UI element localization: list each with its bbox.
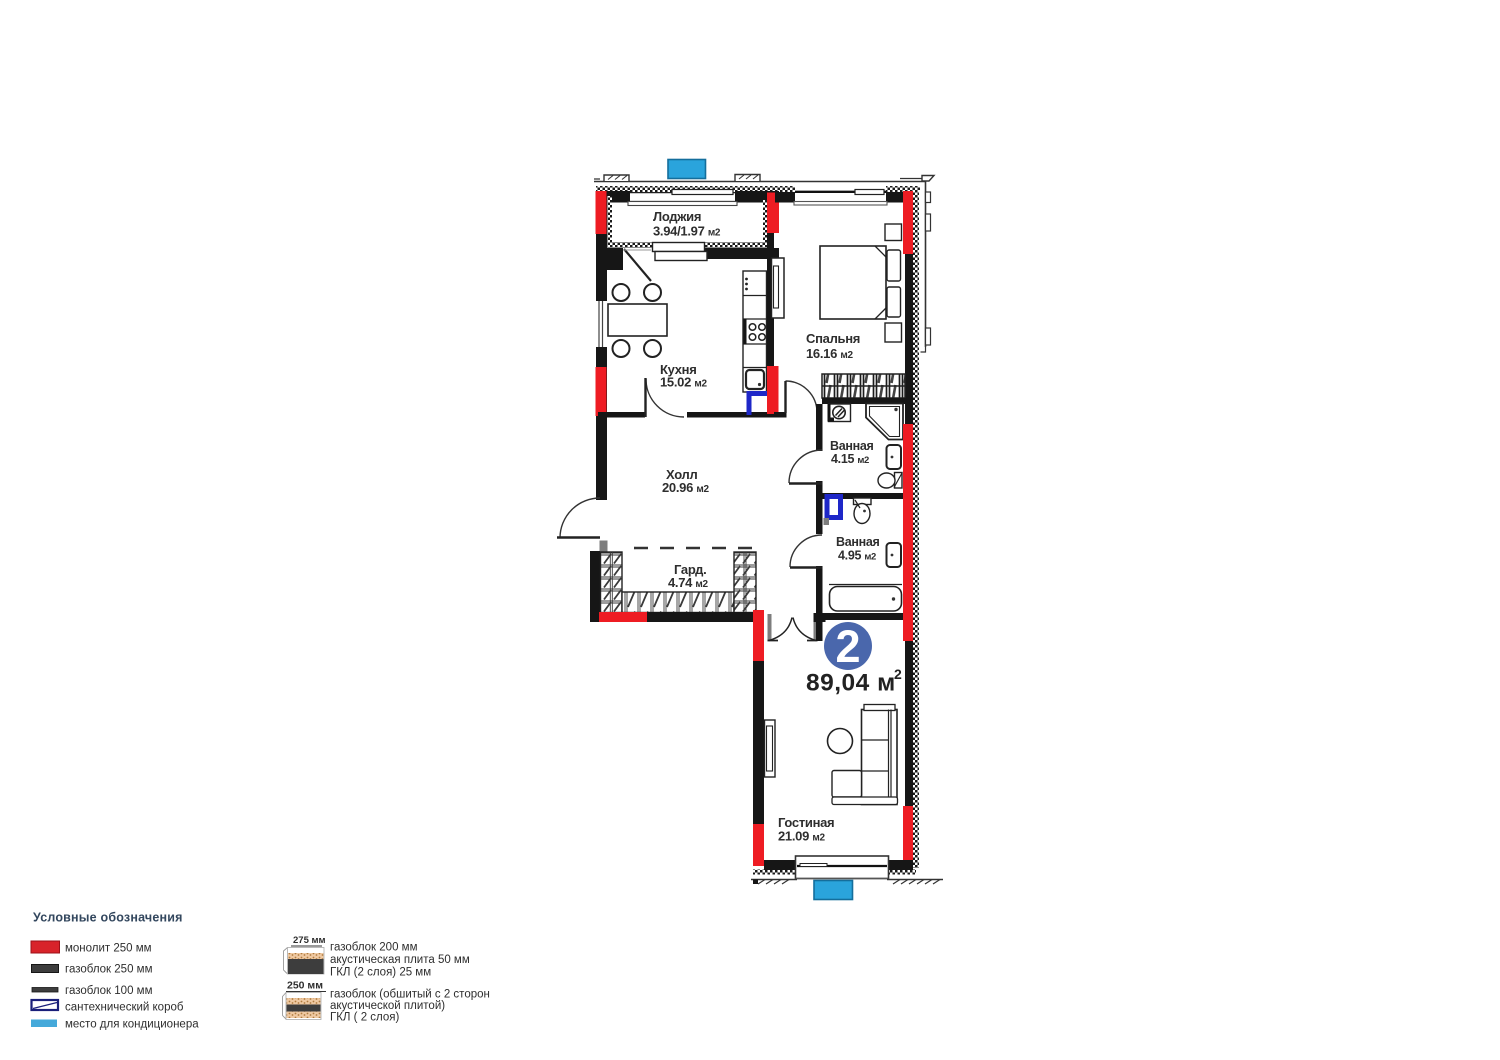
svg-text:газоблок 100 мм: газоблок 100 мм <box>65 985 153 997</box>
svg-text:Спальня: Спальня <box>806 331 860 346</box>
svg-text:акустической плитой): акустической плитой) <box>330 1000 445 1012</box>
svg-text:Условные обозначения: Условные обозначения <box>33 911 183 925</box>
svg-text:Ванная: Ванная <box>830 439 874 453</box>
svg-text:газоблок 200 мм: газоблок 200 мм <box>330 942 418 954</box>
svg-text:сантехнический короб: сантехнический короб <box>65 1002 184 1014</box>
svg-text:Ванная: Ванная <box>836 535 880 549</box>
svg-text:2: 2 <box>894 666 902 682</box>
svg-text:ГКЛ ( 2 слоя): ГКЛ ( 2 слоя) <box>330 1012 399 1024</box>
svg-text:акустическая плита 50 мм: акустическая плита 50 мм <box>330 954 470 966</box>
svg-text:4.15 м2: 4.15 м2 <box>831 452 869 466</box>
svg-text:газоблок (обшитый с 2 сторон: газоблок (обшитый с 2 сторон <box>330 989 490 1001</box>
svg-text:газоблок 250 мм: газоблок 250 мм <box>65 964 153 976</box>
svg-text:4.95 м2: 4.95 м2 <box>838 549 876 563</box>
svg-text:250 мм: 250 мм <box>287 980 323 992</box>
svg-text:275 мм: 275 мм <box>293 935 326 946</box>
svg-text:Лоджия: Лоджия <box>653 209 701 224</box>
svg-text:ГКЛ (2 слоя) 25 мм: ГКЛ (2 слоя) 25 мм <box>330 967 431 979</box>
svg-text:89,04 м: 89,04 м <box>806 670 896 697</box>
svg-text:монолит 250 мм: монолит 250 мм <box>65 943 152 955</box>
svg-text:2: 2 <box>835 621 860 672</box>
svg-text:место для кондиционера: место для кондиционера <box>65 1019 199 1031</box>
